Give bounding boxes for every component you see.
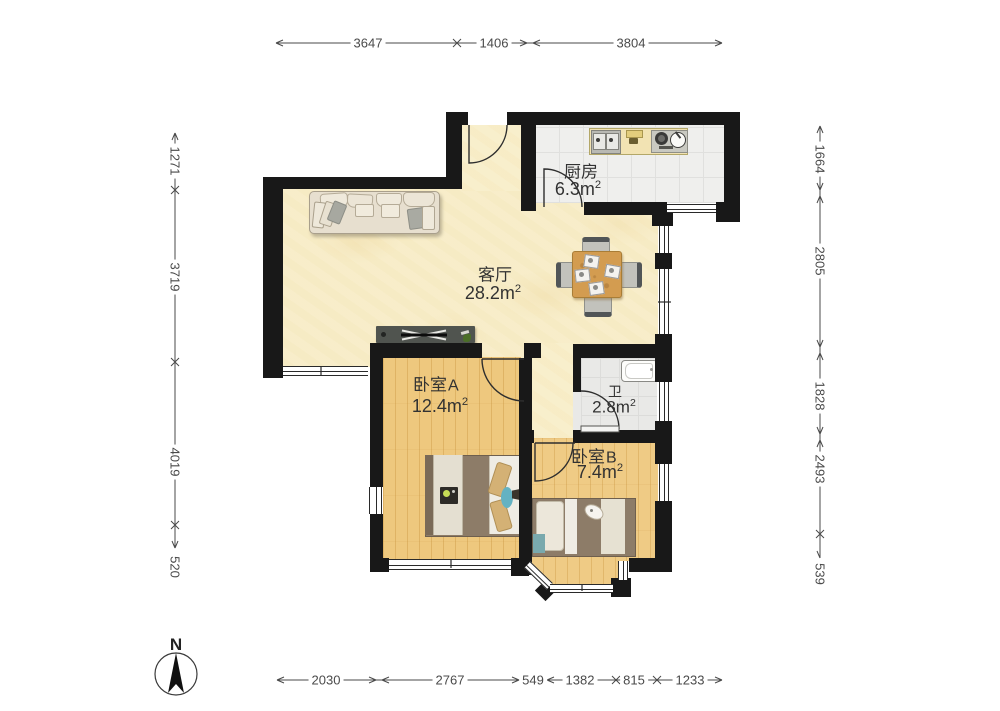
svg-text:N: N — [170, 635, 182, 654]
svg-text:A: A — [448, 378, 459, 395]
